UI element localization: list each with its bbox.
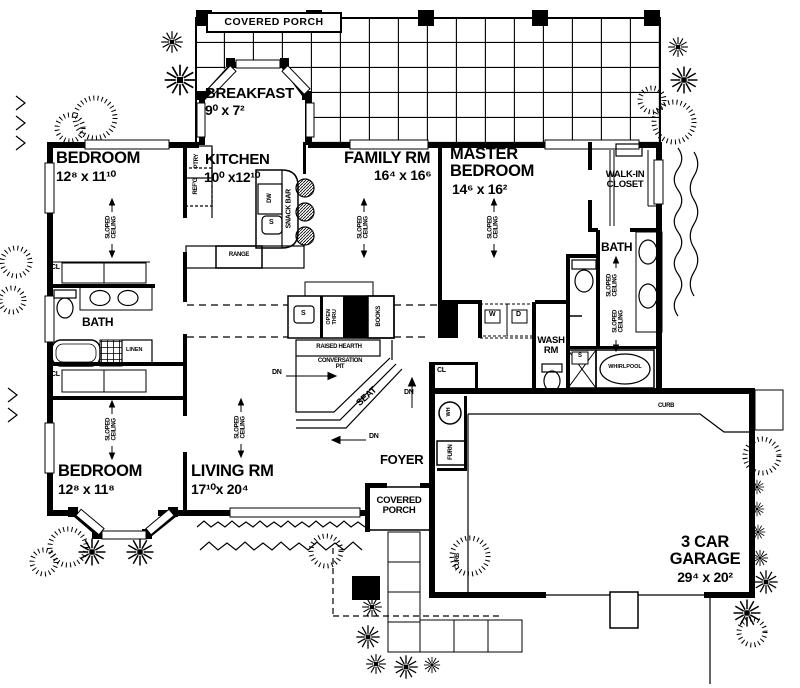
sloped-ceiling-note: SLOPED CEILING: [613, 303, 626, 339]
washer-dryer: [480, 304, 534, 338]
master-bath-label: BATH: [601, 241, 632, 254]
floor-plan-sheet: COVERED PORCH BREAKFAST 9⁰ x 7² BEDROOM …: [0, 0, 800, 688]
living-rm-label: LIVING RM: [191, 463, 274, 480]
sloped-ceiling-note: SLOPED CEILING: [358, 209, 371, 245]
dryer-label: D: [516, 311, 521, 318]
range-label: RANGE: [222, 252, 256, 258]
down-arrows: [286, 373, 416, 444]
raised-hearth-label: RAISED HEARTH: [300, 344, 378, 350]
hall-bath-label: BATH: [82, 316, 113, 329]
fireplace: [288, 282, 402, 428]
planter: [610, 592, 638, 628]
bedroom-lower-dims: 12⁸ x 11⁸: [58, 482, 114, 497]
living-rm-dims: 17¹⁰x 20⁴: [191, 482, 248, 497]
down-label: DN: [272, 369, 282, 376]
kitchen-label: KITCHEN: [205, 152, 270, 168]
master-bedroom-dims: 14⁶ x 16²: [452, 182, 507, 197]
washer-label: W: [489, 311, 495, 318]
mantel: [305, 282, 373, 296]
ceiling-break-lines: [187, 305, 438, 337]
shower-sink-label: S: [578, 353, 582, 359]
stoop: [755, 390, 783, 430]
family-rm-dims: 16⁴ x 16⁶: [374, 168, 431, 183]
furnace-label: FURN: [448, 440, 454, 464]
water-heater-label: WH: [447, 405, 453, 419]
closet-label: CL: [51, 371, 60, 378]
bedroom-upper-dims: 12⁸ x 11¹⁰: [56, 169, 116, 184]
linen-label: LINEN: [126, 348, 143, 354]
bedroom-lower-label: BEDROOM: [58, 463, 142, 480]
down-label: DN: [404, 389, 414, 396]
conversation-pit-outline: [296, 340, 402, 428]
down-label: DN: [369, 433, 379, 440]
fireplace-sink-label: S: [301, 310, 305, 317]
pantry-label: PTRY: [194, 149, 200, 173]
toilet-bowl: [575, 270, 593, 292]
sink-bowl: [90, 291, 110, 306]
foyer-label: FOYER: [380, 453, 423, 467]
sink-bowl: [639, 240, 657, 264]
family-rm-label: FAMILY RM: [344, 150, 430, 167]
toilet-tank: [54, 290, 76, 298]
curb-label: CURB: [658, 403, 674, 409]
covered-porch-top-label: COVERED PORCH: [206, 12, 342, 33]
breakfast-label: BREAKFAST: [205, 86, 294, 102]
kitchen-sink-label: S: [269, 219, 273, 226]
closet-label: CL: [51, 264, 60, 271]
sloped-ceiling-note: SLOPED CEILING: [488, 209, 501, 245]
closet-label: CL: [437, 367, 446, 374]
dishwasher-label: DW: [267, 191, 273, 205]
wash-rm-label: WASH RM: [531, 336, 571, 356]
stool: [296, 179, 314, 197]
open-thru-label: OPEN THRU: [327, 304, 339, 330]
sloped-ceiling-note: SLOPED CEILING: [106, 411, 119, 447]
toilet-bowl: [57, 298, 73, 318]
vanity: [80, 286, 152, 310]
whirlpool-label: WHIRLPOOL: [600, 365, 650, 371]
sloped-ceiling-note: SLOPED CEILING: [235, 409, 248, 445]
walk-in-closet-label: WALK-IN CLOSET: [595, 170, 655, 190]
front-porch-label: COVERED PORCH: [369, 496, 429, 516]
garage-dims: 29⁴ x 20²: [650, 570, 760, 585]
shower: [568, 350, 596, 388]
curb-label: CURB: [455, 548, 461, 574]
stool: [296, 227, 314, 245]
bedroom-upper-label: BEDROOM: [56, 150, 140, 167]
snack-bar-label: SNACK BAR: [285, 187, 292, 231]
tiled-shower: [100, 340, 122, 366]
equipment-pad: [352, 576, 380, 600]
master-bedroom-label: MASTER BEDROOM: [450, 146, 534, 181]
breakfast-dims: 9⁰ x 7²: [205, 103, 244, 118]
garage-label: 3 CAR GARAGE: [650, 534, 760, 569]
refrigerator-label: REF'G: [193, 174, 199, 198]
sloped-ceiling-note: SLOPED CEILING: [106, 209, 119, 245]
toilet-tank: [572, 260, 596, 269]
kitchen-dims: 10⁰ x12¹⁰: [204, 170, 260, 185]
stool: [296, 203, 314, 221]
sink-bowl: [118, 291, 138, 306]
conversation-pit-label: CONVERSATION PIT: [303, 358, 377, 371]
sink-bowl: [639, 284, 657, 308]
fireplace-mass: [346, 296, 368, 338]
books-label: BOOKS: [376, 301, 382, 331]
sloped-ceiling-note: SLOPED CEILING: [607, 267, 620, 303]
